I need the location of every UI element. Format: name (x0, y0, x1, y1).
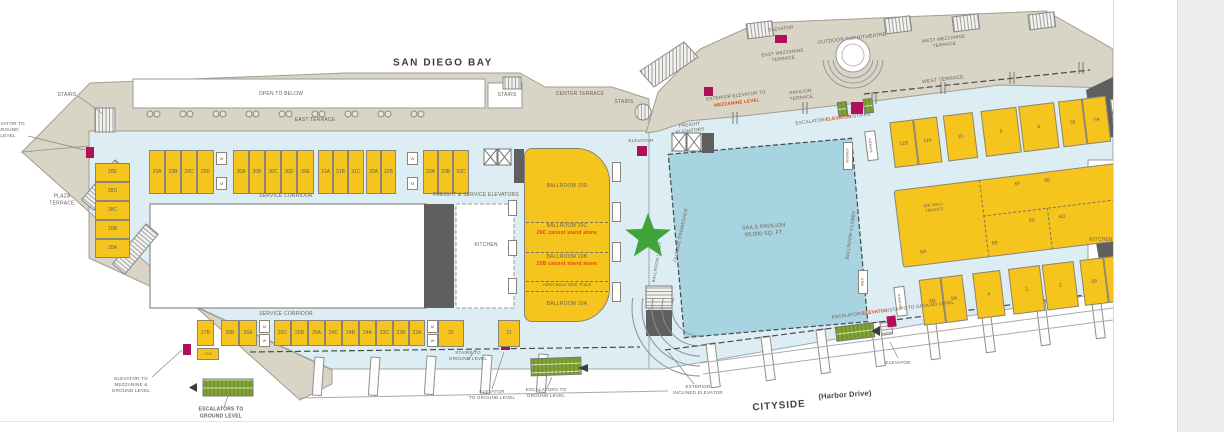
elevator-label: ELEVATOR (768, 24, 794, 33)
plaza-terrace-label: PLAZA TERRACE (49, 194, 74, 207)
ballroom-20a-label: BALLROOM 20A (547, 301, 587, 308)
east-mezzanine-terrace-label: EAST MEZZANINE TERRACE (761, 47, 805, 64)
escg-part2: ELEVATOR (862, 308, 888, 316)
page-gutter (1177, 0, 1224, 432)
outdoor-amphitheatre-label: OUTDOOR AMPHITHEATRE (817, 32, 887, 47)
west-mezzanine-terrace-label: WEST MEZZANINE TERRACE (922, 33, 967, 50)
elevator-label: ELEVATOR (885, 360, 910, 366)
escalators-to-ground-bold-label: ESCALATORS TO GROUND LEVEL (199, 407, 244, 420)
ballroom-20d-label: BALLROOM 20D (547, 183, 588, 190)
open-to-below-label: OPEN TO BELOW (259, 91, 303, 98)
ballroom-20b-label: BALLROOM 20B (547, 254, 587, 261)
floor-plan-page: 28E28D28C28B28A29A29B29C29DWM30A30B30C30… (0, 0, 1224, 432)
floor-plan-map: 28E28D28C28B28A29A29B29C29DWM30A30B30C30… (0, 0, 1114, 422)
escg-part3: /STAIRS TO GROUND LEVEL (888, 300, 955, 313)
stairs-label: STAIRS (615, 99, 634, 106)
freight-service-elevators-label: FREIGHT & SERVICE ELEVATORS (433, 192, 519, 199)
east-terrace-label: EAST TERRACE (295, 117, 336, 124)
kitchen-label-east: KITCHEN (1089, 237, 1112, 244)
note-20b-label: 20B cannot stand alone (537, 261, 598, 268)
alternative-wall-track-label: Alternative Wall Track (543, 282, 592, 288)
stairs-label: STAIRS (498, 92, 517, 99)
sails-pavilion-label: SAILS PAVILION 90,000 SQ. FT. (742, 222, 787, 239)
escalator-elevator-stairs-ground-label: ESCALATOR/ELEVATOR/STAIRS TO GROUND LEVE… (831, 300, 954, 321)
cityside-label: CITYSIDE (752, 398, 806, 415)
stairs-to-ground-label: STAIRS TO GROUND LEVEL (449, 350, 487, 362)
elevator-to-ground-label: ELEVATOR TO GROUND LEVEL (469, 389, 516, 401)
center-terrace-label: CENTER TERRACE (556, 91, 605, 98)
elevator-label: ELEVATOR (628, 138, 653, 144)
ballroom-lobby-label: BALLROOM LOBBY (651, 241, 664, 283)
west-terrace-label: WEST TERRACE (922, 74, 964, 86)
freight-elevators-label: FREIGHT ELEVATORS (675, 120, 705, 135)
san-diego-bay-label: SAN DIEGO BAY (393, 57, 493, 70)
elevator-to-ground-left-label: ELEVATOR TO GROUND LEVEL (0, 121, 25, 139)
outside-promenade-label: OUTSIDE PROMENADE (672, 208, 689, 263)
esc-part3: /STAIRS (851, 111, 870, 118)
escg-part1: ESCALATOR/ (831, 311, 862, 320)
ballroom-6-lobby-label: BALLROOM 6 LOBBY (845, 210, 858, 260)
escalators-to-ground-label: ESCALATORS TO GROUND LEVEL (526, 387, 567, 399)
stairs-label: STAIRS (58, 92, 77, 99)
note-20c-label: 20C cannot stand alone (537, 230, 598, 237)
elevator-to-mezzanine-ground-label: ELEVATOR TO MEZZANINE & GROUND LEVEL (112, 376, 150, 394)
escalator-elevator-stairs-label: ESCALATOR/ELEVATOR/STAIRS (795, 111, 871, 126)
pavilion-terrace-label: PAVILION TERRACE (789, 88, 814, 103)
ballroom-20c-label: BALLROOM 20C (547, 223, 588, 230)
esc-part2: ELEVATOR (826, 114, 852, 122)
esc-part1: ESCALATOR/ (795, 117, 826, 126)
exterior-inclined-elevator-label: EXTERIOR INCLINED ELEVATOR (673, 384, 723, 396)
harbor-drive-label: (Harbor Drive) (818, 388, 872, 401)
kitchen-label: KITCHEN (474, 242, 497, 249)
map-labels: SAN DIEGO BAY OPEN TO BELOW EAST TERRACE… (0, 0, 1113, 421)
service-corridor-label: SERVICE CORRIDOR (259, 193, 313, 200)
service-corridor-label: SERVICE CORRIDOR (259, 311, 313, 318)
